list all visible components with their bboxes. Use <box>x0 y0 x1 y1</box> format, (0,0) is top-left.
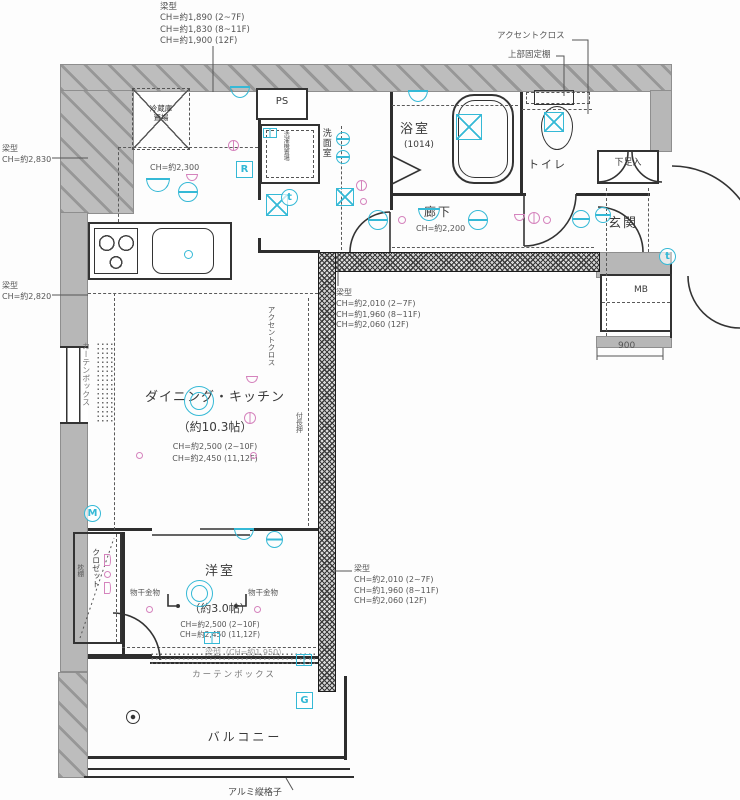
switch-icon <box>244 412 256 424</box>
beam-note-bottom: 梁型（CH=約1,950） <box>205 648 286 659</box>
beam-note-left-lower: 梁型 CH=約2,820 <box>2 281 51 303</box>
ceiling-light-icon <box>572 210 590 228</box>
crosshatch-wall-vertical <box>318 252 336 692</box>
laundry-hook-right-label: 物干金物 <box>248 588 278 597</box>
door-arc-mb <box>688 276 740 328</box>
wall-washroom-south <box>258 250 320 253</box>
main-light-icon <box>184 386 214 416</box>
balcony-bottom-1 <box>88 756 346 759</box>
downlight-icon <box>336 150 350 164</box>
wall-bath-toilet <box>520 92 523 193</box>
badge-t: t <box>659 248 676 265</box>
western-size-label: （約3.0帖） <box>145 602 295 615</box>
badge-R: R <box>236 161 253 178</box>
ceiling-light-icon <box>368 210 388 230</box>
badge-M: M <box>84 505 101 522</box>
wall-balcony-top-west <box>88 654 152 659</box>
curtain-box-left-label: カーテンボックス <box>81 342 91 434</box>
badge-G: G <box>296 692 313 709</box>
ceiling-light-icon <box>468 210 488 230</box>
toilet-tank-icon <box>534 90 574 105</box>
outlet-icon <box>360 198 367 205</box>
badge-t: t <box>281 189 298 206</box>
beam-note-mid: 梁型 CH=約2,010 (2~7F) CH=約1,960 (8~11F) CH… <box>336 288 421 331</box>
washroom-label: 洗面室 <box>320 128 331 190</box>
main-light-icon <box>186 580 213 607</box>
beam-note-left-upper: 梁型 CH=約2,830 <box>2 144 51 166</box>
dining-ch1-label: CH=約2,500 (2~10F) <box>120 442 310 452</box>
closet-door-line <box>116 534 117 642</box>
outlet-icon <box>146 606 153 613</box>
outlet-icon <box>543 216 551 224</box>
switch-icon <box>186 174 198 181</box>
switch-icon <box>104 582 111 594</box>
accent-cross-note-top: アクセントクロス <box>497 31 565 42</box>
switch-icon <box>356 180 367 191</box>
laundry-hook-left-label: 物干金物 <box>130 588 160 597</box>
vent-fan-icon <box>456 114 482 140</box>
downlight-icon <box>336 132 350 146</box>
kitchen-sink-icon <box>152 228 214 274</box>
vent-fan-icon <box>336 188 354 206</box>
faucet-icon <box>184 250 193 259</box>
window-lock-icon <box>204 632 220 644</box>
wall-bath-south <box>390 193 522 196</box>
corridor-ch-label: CH=約2,200 <box>416 224 465 234</box>
beam-line-kitchen-v <box>118 147 119 222</box>
beam-note-top: 梁型 CH=約1,890 (2~7F) CH=約1,830 (8~11F) CH… <box>160 2 250 48</box>
outlet-icon <box>136 452 143 459</box>
meter-box <box>600 274 672 332</box>
ceiling-light-icon <box>266 531 283 548</box>
curtain-box-bottom-label: カーテンボックス <box>150 670 318 680</box>
wall-toilet-south-a <box>520 193 526 196</box>
wall-balcony-right <box>344 676 347 760</box>
wall-right-column <box>650 90 672 152</box>
outlet-icon <box>104 571 111 578</box>
bath-size-label: (1014) <box>404 140 434 151</box>
beam-line-bath <box>392 105 518 106</box>
dining-size-label: （約10.3帖） <box>120 420 310 434</box>
window-lock-icon <box>296 654 312 666</box>
washer-faucet-icon <box>263 128 277 138</box>
ps-label: PS <box>256 96 308 108</box>
accent-cross-side-label: アクセントクロス <box>267 306 276 402</box>
dining-ch2-label: CH=約2,450 (11,12F) <box>120 454 310 464</box>
ceiling-light-icon <box>234 528 254 540</box>
closet-label: クロゼット <box>91 548 101 634</box>
western-label: 洋室 <box>145 564 295 580</box>
wall-western-left <box>122 532 125 656</box>
wall-dining-western-b <box>250 528 318 531</box>
wall-toilet-south-b <box>576 193 650 196</box>
balcony-label: バルコニー <box>180 730 310 744</box>
switch-icon <box>528 212 540 224</box>
balcony-bottom-2 <box>88 768 350 770</box>
toilet-label: トイレ <box>528 158 567 171</box>
wall-bottom-left-block <box>58 672 88 778</box>
dimension-900-label: 900 <box>618 340 635 352</box>
crosshatch-wall-horizontal <box>318 252 600 272</box>
washer-label: 洗濯機置場 <box>282 131 289 179</box>
upper-shelf-note: 上部固定棚 <box>508 50 551 61</box>
door-arc-entry <box>672 166 740 252</box>
vent-fan-icon <box>544 112 564 132</box>
beam-line-dining-v <box>114 293 115 530</box>
switch-icon <box>514 214 525 221</box>
western-ch1-label: CH=約2,500 (2~10F) <box>145 620 295 629</box>
ceiling-light-icon <box>595 207 611 223</box>
western-ch2-label: CH=約2,450 (11,12F) <box>145 630 295 639</box>
stove-icon <box>94 228 138 274</box>
nageshi-line <box>308 298 309 526</box>
leader-lattice <box>286 778 293 790</box>
bath-label: 浴室 <box>400 122 430 138</box>
mb-label: MB <box>634 285 648 296</box>
switch-icon <box>246 376 258 383</box>
beam-note-title: 梁型 <box>160 2 250 13</box>
ceiling-light-icon <box>408 90 428 102</box>
kitchen-ch-label: CH=約2,300 <box>150 163 199 173</box>
switch-icon <box>104 554 111 566</box>
wall-dining-western-a <box>88 528 152 531</box>
beam-line-corridor <box>392 247 594 248</box>
outlet-icon <box>254 606 261 613</box>
outlet-icon <box>250 452 257 459</box>
ceiling-light-icon <box>230 86 250 98</box>
outlet-icon <box>398 216 406 224</box>
door-fold-bath <box>392 156 420 184</box>
entrance-line2 <box>648 188 649 252</box>
ceiling-light-icon <box>146 178 170 192</box>
lattice-note: アルミ縦格子 <box>228 787 282 799</box>
ceiling-light-icon <box>178 182 198 202</box>
drain-cap-icon <box>126 710 140 724</box>
shoe-label: 下足入 <box>597 158 659 169</box>
nageshi-label: 付長押 <box>295 412 303 452</box>
entrance-label: 玄関 <box>608 216 638 232</box>
balcony-bottom-3 <box>84 776 354 778</box>
switch-icon <box>228 140 239 151</box>
beam-note-right: 梁型 CH=約2,010 (2~7F) CH=約1,960 (8~11F) CH… <box>354 564 439 607</box>
beam-line-dining <box>88 293 318 294</box>
closet-shelf-label: 枕棚 <box>75 564 83 594</box>
refrigerator-label: 冷蔵庫置場 <box>132 104 190 122</box>
meter-box-line <box>602 302 670 303</box>
dining-label: ダイニング・キッチン <box>120 390 310 406</box>
curtain-box-left <box>96 342 113 424</box>
floor-plan: 梁型 CH=約1,890 (2~7F) CH=約1,830 (8~11F) CH… <box>0 0 740 800</box>
wall-top-left-block <box>60 90 134 214</box>
beam-line-toilet <box>522 109 592 110</box>
